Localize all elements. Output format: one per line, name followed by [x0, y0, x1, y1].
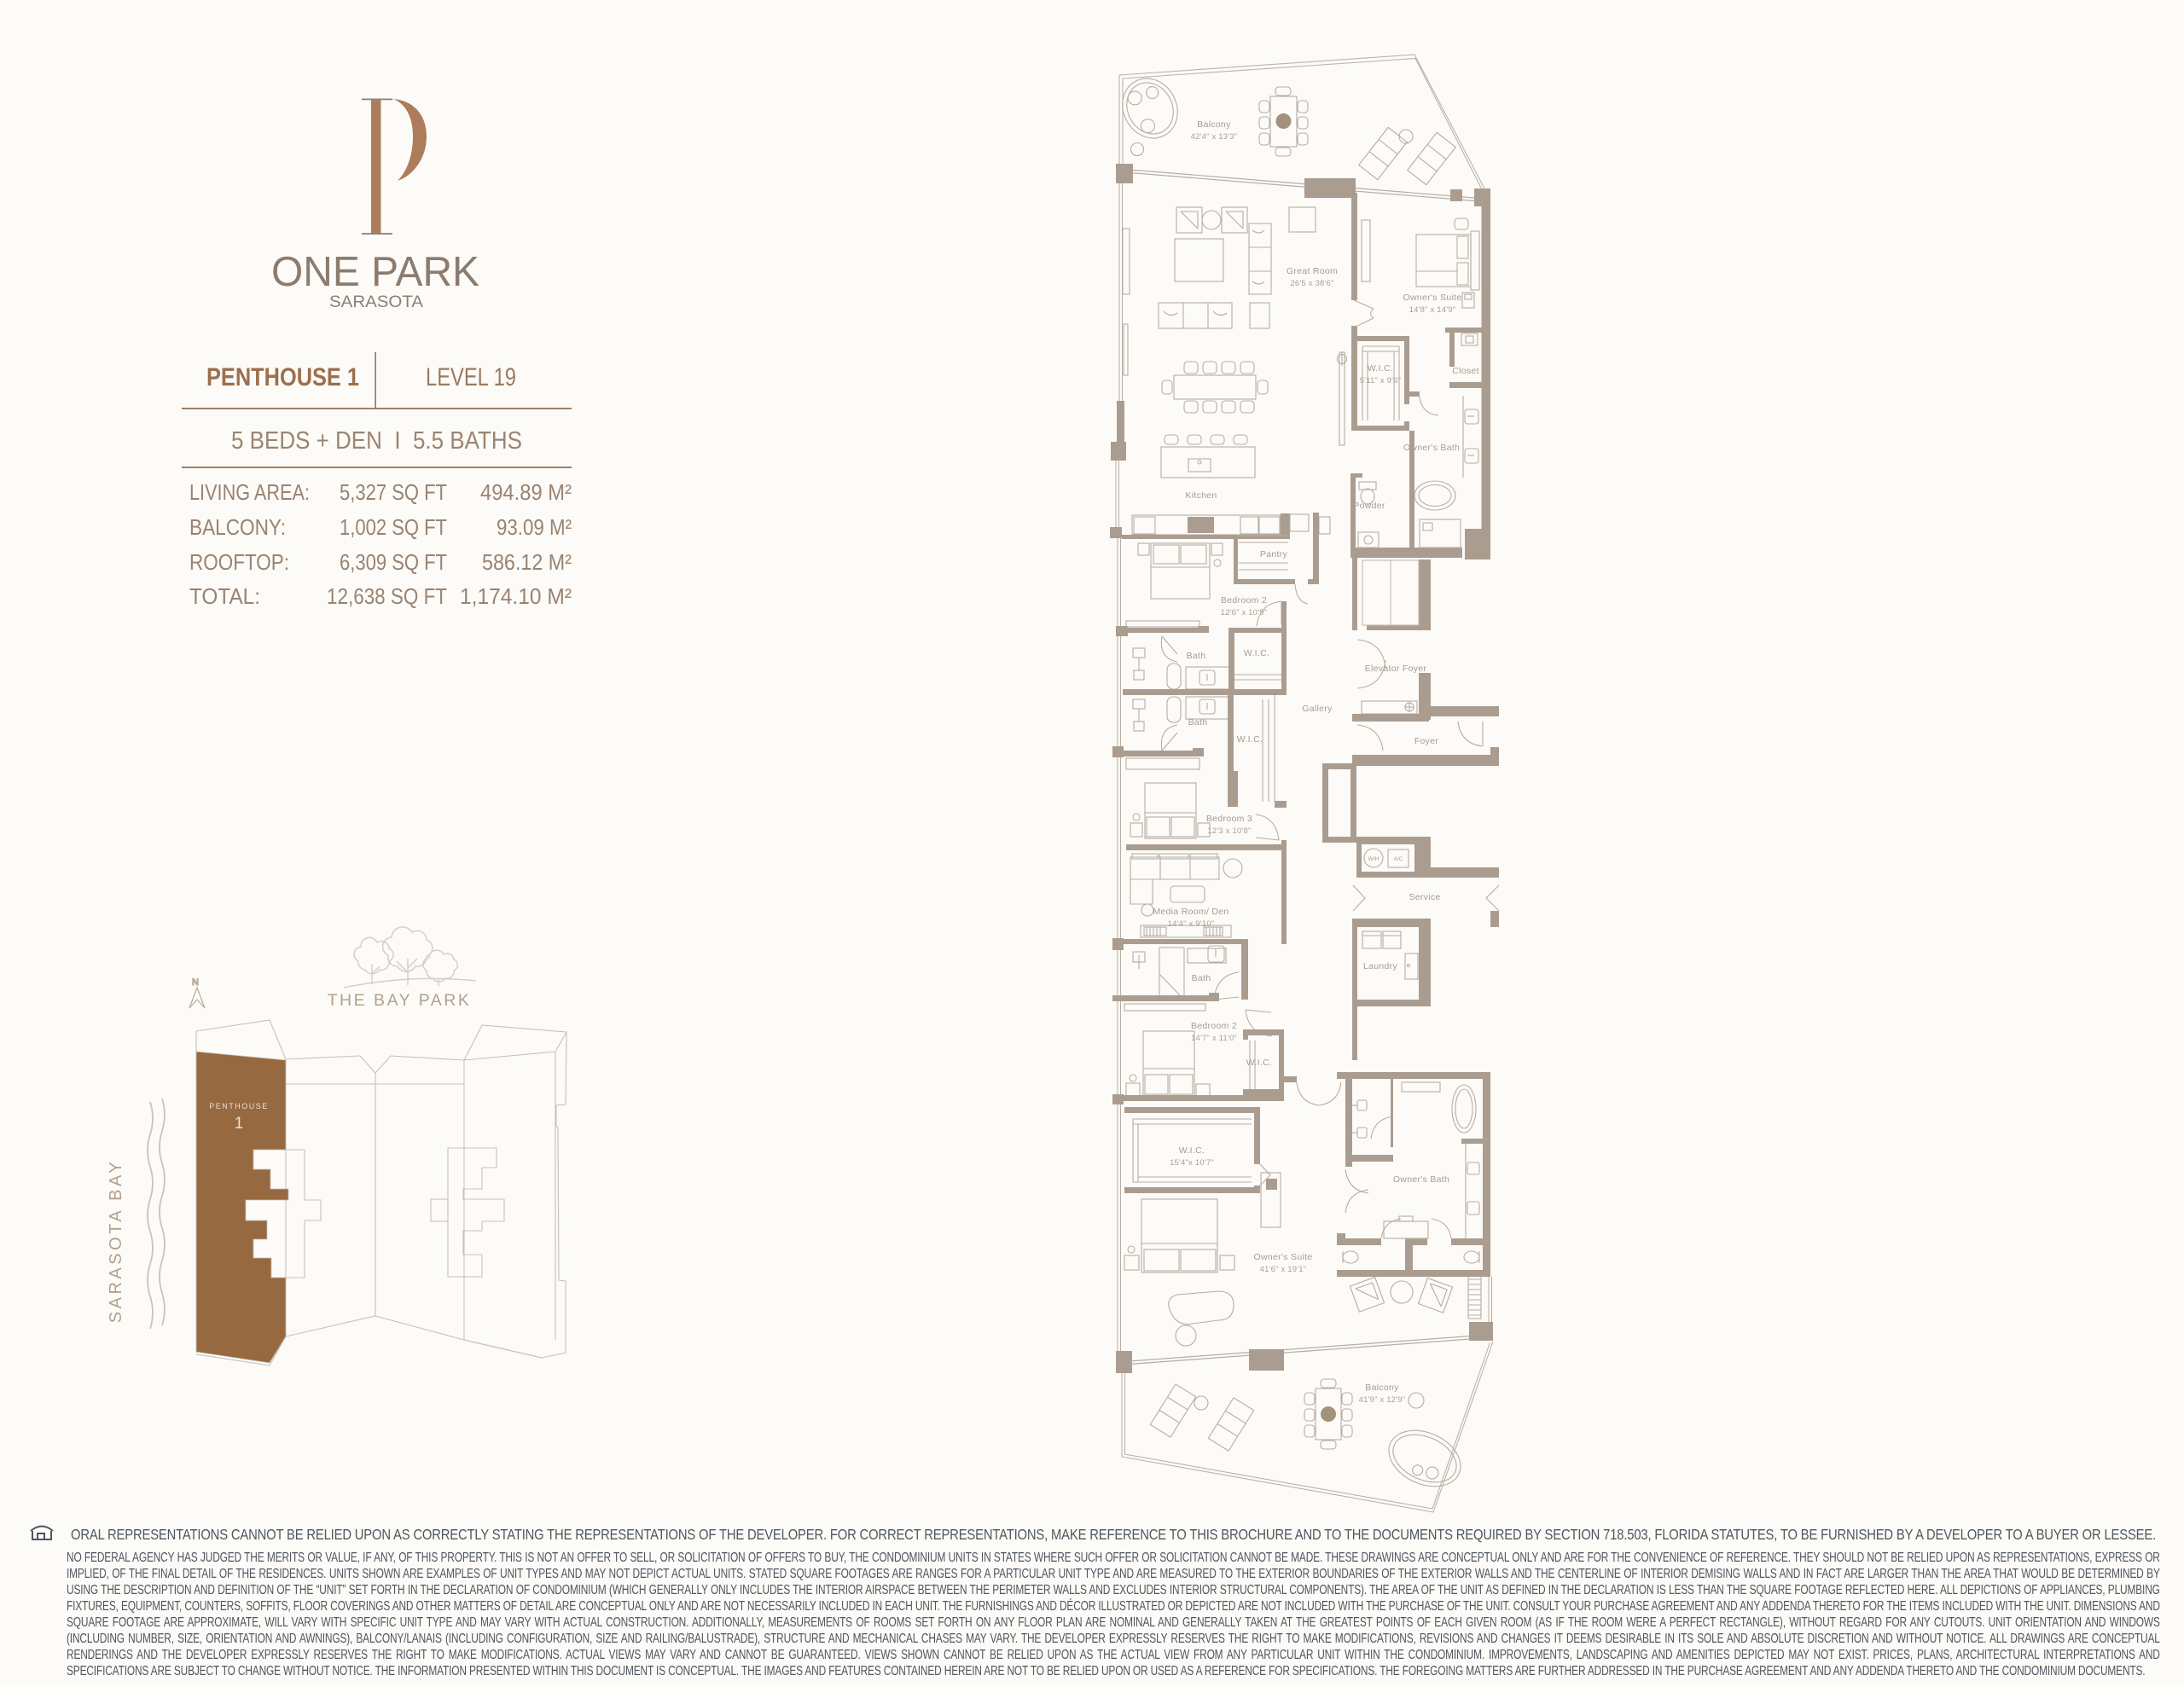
svg-text:26'5 x 38'6": 26'5 x 38'6" [1290, 279, 1333, 288]
svg-text:Powder: Powder [1353, 501, 1385, 511]
svg-text:A/C: A/C [1394, 856, 1403, 862]
svg-text:Gallery: Gallery [1302, 704, 1333, 714]
svg-text:Pantry: Pantry [1260, 549, 1288, 559]
svg-text:W.I.C.: W.I.C. [1244, 648, 1269, 658]
svg-text:12,638 SQ FT: 12,638 SQ FT [327, 583, 447, 609]
svg-text:14'4" x 9'10": 14'4" x 9'10" [1168, 919, 1215, 929]
svg-text:1,174.10 M²: 1,174.10 M² [460, 583, 572, 609]
svg-text:5,327 SQ FT: 5,327 SQ FT [340, 479, 447, 505]
svg-text:494.89 M²: 494.89 M² [480, 479, 572, 505]
svg-text:Bath: Bath [1192, 973, 1211, 983]
svg-text:LIVING AREA:: LIVING AREA: [189, 479, 310, 505]
svg-text:Foyer: Foyer [1414, 736, 1439, 746]
svg-text:W.I.C.: W.I.C. [1246, 1058, 1272, 1068]
svg-text:PENTHOUSE: PENTHOUSE [209, 1102, 269, 1110]
svg-text:Great Room: Great Room [1287, 266, 1338, 276]
svg-text:Kitchen: Kitchen [1185, 490, 1217, 501]
svg-text:41'9" x 12'9": 41'9" x 12'9" [1359, 1395, 1406, 1405]
svg-text:1: 1 [235, 1115, 244, 1133]
svg-text:ONE PARK: ONE PARK [271, 249, 479, 295]
svg-text:TOTAL:: TOTAL: [189, 583, 260, 609]
svg-text:93.09 M²: 93.09 M² [497, 514, 572, 540]
svg-text:5'11" x 9'6": 5'11" x 9'6" [1360, 376, 1402, 386]
svg-text:12'3 x 10'8": 12'3 x 10'8" [1207, 826, 1251, 836]
svg-text:14'7" x 11'0": 14'7" x 11'0" [1191, 1034, 1237, 1043]
svg-text:W/H: W/H [1368, 856, 1380, 862]
svg-text:Elevator Foyer: Elevator Foyer [1365, 664, 1427, 674]
svg-text:15'4"x 10'7": 15'4"x 10'7" [1170, 1158, 1214, 1168]
svg-text:Owner's Bath: Owner's Bath [1403, 443, 1460, 453]
svg-text:Owner's Suite: Owner's Suite [1403, 293, 1462, 303]
svg-text:Media Room/ Den: Media Room/ Den [1153, 907, 1228, 917]
svg-text:Closet: Closet [1452, 366, 1479, 376]
svg-text:THE BAY PARK: THE BAY PARK [328, 991, 472, 1010]
svg-text:5 BEDS + DEN I 5.5 BATHS: 5 BEDS + DEN I 5.5 BATHS [231, 427, 522, 455]
svg-text:12'6" x 10'9": 12'6" x 10'9" [1221, 608, 1268, 617]
svg-text:Balcony: Balcony [1365, 1383, 1399, 1393]
svg-text:Bath: Bath [1188, 717, 1208, 728]
svg-text:W.I.C.: W.I.C. [1179, 1145, 1205, 1156]
svg-text:N: N [192, 977, 199, 988]
svg-text:Bedroom 2: Bedroom 2 [1191, 1021, 1237, 1031]
svg-text:Bath: Bath [1187, 651, 1206, 661]
svg-text:14'8" x 14'9": 14'8" x 14'9" [1409, 305, 1456, 315]
svg-text:W.I.C.: W.I.C. [1237, 734, 1263, 745]
svg-text:BALCONY:: BALCONY: [189, 514, 286, 540]
svg-text:SARASOTA: SARASOTA [329, 293, 423, 311]
svg-text:1,002 SQ FT: 1,002 SQ FT [340, 514, 447, 540]
svg-text:Owner's Suite: Owner's Suite [1254, 1252, 1313, 1262]
svg-text:41'6" x 19'1": 41'6" x 19'1" [1260, 1265, 1307, 1274]
svg-text:Owner's Bath: Owner's Bath [1393, 1174, 1449, 1185]
svg-text:42'4" x 13'3": 42'4" x 13'3" [1191, 132, 1238, 142]
svg-text:Bedroom 3: Bedroom 3 [1206, 814, 1252, 824]
svg-text:586.12 M²: 586.12 M² [482, 549, 572, 575]
svg-text:SARASOTA BAY: SARASOTA BAY [107, 1159, 125, 1323]
svg-text:LEVEL 19: LEVEL 19 [426, 363, 516, 391]
svg-text:Laundry: Laundry [1363, 961, 1397, 971]
svg-text:Service: Service [1409, 892, 1440, 902]
svg-text:W.I.C.: W.I.C. [1368, 363, 1393, 374]
svg-text:Balcony: Balcony [1197, 119, 1231, 130]
svg-text:ROOFTOP:: ROOFTOP: [189, 549, 289, 575]
svg-text:PENTHOUSE 1: PENTHOUSE 1 [206, 363, 359, 391]
svg-text:Bedroom 2: Bedroom 2 [1221, 595, 1267, 606]
svg-text:6,309 SQ FT: 6,309 SQ FT [340, 549, 447, 575]
